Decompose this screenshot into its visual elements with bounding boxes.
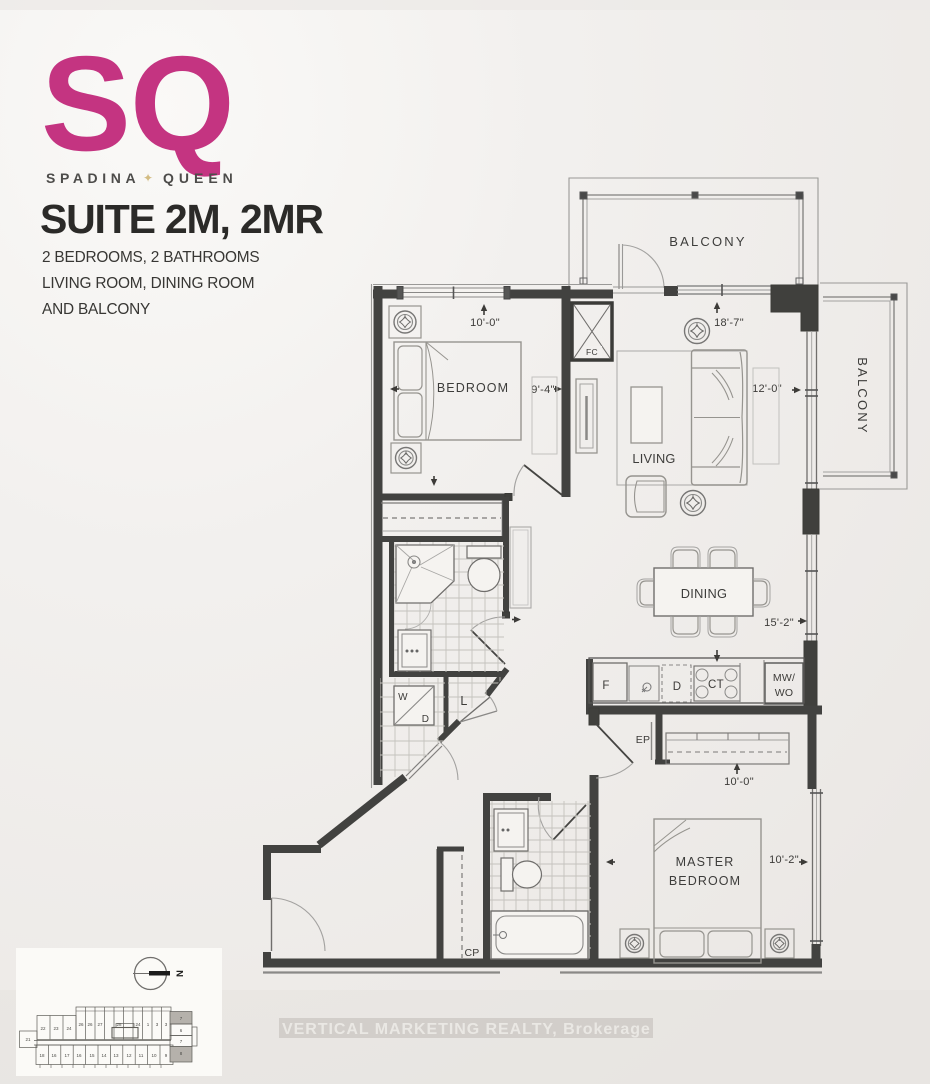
svg-text:10'-0": 10'-0" xyxy=(724,776,754,788)
svg-text:26: 26 xyxy=(78,1022,84,1027)
svg-text:WO: WO xyxy=(775,687,793,699)
svg-text:F: F xyxy=(602,680,609,692)
svg-text:28: 28 xyxy=(116,1022,122,1027)
svg-text:21: 21 xyxy=(25,1037,31,1042)
svg-text:27: 27 xyxy=(97,1022,103,1027)
svg-text:MASTER: MASTER xyxy=(676,855,735,869)
svg-text:14: 14 xyxy=(101,1053,107,1058)
svg-text:BEDROOM: BEDROOM xyxy=(437,381,509,395)
svg-text:W: W xyxy=(398,692,408,703)
svg-text:✦: ✦ xyxy=(143,171,153,185)
svg-text:LIVING ROOM, DINING ROOM: LIVING ROOM, DINING ROOM xyxy=(42,275,254,292)
svg-text:2 BEDROOMS, 2 BATHROOMS: 2 BEDROOMS, 2 BATHROOMS xyxy=(42,249,259,266)
svg-text:22: 22 xyxy=(40,1026,46,1031)
svg-text:BEDROOM: BEDROOM xyxy=(669,874,741,888)
svg-text:L: L xyxy=(460,694,467,708)
svg-text:BALCONY: BALCONY xyxy=(669,234,747,249)
svg-text:10'-2": 10'-2" xyxy=(769,854,799,866)
svg-text:15: 15 xyxy=(89,1053,95,1058)
svg-text:16: 16 xyxy=(76,1053,82,1058)
svg-text:D: D xyxy=(422,714,429,725)
svg-text:23: 23 xyxy=(53,1026,59,1031)
svg-text:24: 24 xyxy=(66,1026,72,1031)
svg-text:D: D xyxy=(673,681,682,693)
svg-text:18: 18 xyxy=(39,1053,45,1058)
svg-text:CP: CP xyxy=(465,947,480,959)
svg-text:10'-0": 10'-0" xyxy=(470,317,500,329)
svg-text:AND BALCONY: AND BALCONY xyxy=(42,301,150,318)
svg-text:VERTICAL MARKETING REALTY, Bro: VERTICAL MARKETING REALTY, Brokerage xyxy=(282,1021,651,1038)
svg-text:10: 10 xyxy=(151,1053,157,1058)
svg-text:SUITE 2M, 2MR: SUITE 2M, 2MR xyxy=(40,196,323,242)
svg-text:N: N xyxy=(174,970,185,977)
svg-text:11: 11 xyxy=(139,1053,144,1058)
svg-text:17: 17 xyxy=(64,1053,70,1058)
svg-text:13: 13 xyxy=(113,1053,119,1058)
svg-text:DINING: DINING xyxy=(681,586,728,601)
svg-text:SQ: SQ xyxy=(41,28,234,179)
svg-text:9'-4": 9'-4" xyxy=(531,384,554,396)
svg-text:MW/: MW/ xyxy=(773,672,795,684)
svg-text:EP: EP xyxy=(636,734,651,746)
svg-text:24: 24 xyxy=(135,1022,141,1027)
svg-text:SPADINA: SPADINA xyxy=(46,170,140,186)
svg-text:LIVING: LIVING xyxy=(632,451,675,466)
svg-text:12'-0": 12'-0" xyxy=(752,383,782,395)
svg-text:16: 16 xyxy=(51,1053,57,1058)
svg-text:12: 12 xyxy=(126,1053,132,1058)
svg-text:QUEEN: QUEEN xyxy=(163,170,238,186)
svg-text:26: 26 xyxy=(87,1022,93,1027)
svg-text:CT: CT xyxy=(708,679,724,691)
svg-text:BALCONY: BALCONY xyxy=(855,357,870,435)
svg-text:18'-7": 18'-7" xyxy=(714,317,744,329)
svg-text:FC: FC xyxy=(586,347,598,357)
svg-text:15'-2": 15'-2" xyxy=(764,617,794,629)
